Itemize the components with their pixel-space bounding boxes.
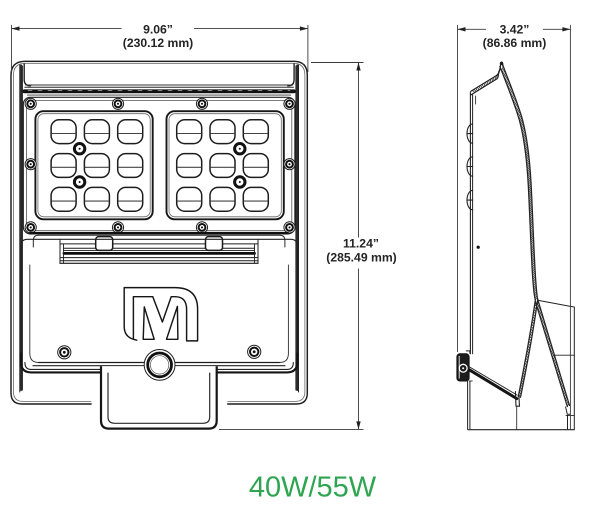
svg-text:11.24”: 11.24” <box>343 237 379 251</box>
svg-text:3.42”: 3.42” <box>500 23 530 37</box>
svg-text:40W/55W: 40W/55W <box>249 472 377 504</box>
svg-text:(86.86 mm): (86.86 mm) <box>483 36 547 50</box>
svg-text:(285.49 mm): (285.49 mm) <box>326 251 396 265</box>
svg-text:9.06”: 9.06” <box>143 23 173 37</box>
svg-text:(230.12 mm): (230.12 mm) <box>123 36 193 50</box>
